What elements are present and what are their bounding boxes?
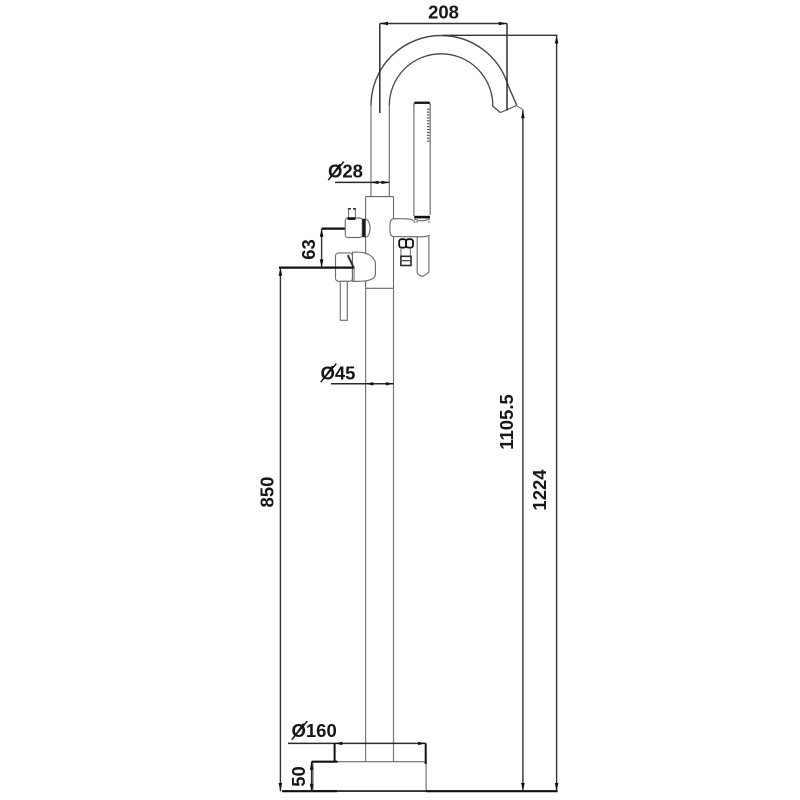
svg-text:Ø28: Ø28 xyxy=(328,161,363,182)
svg-text:850: 850 xyxy=(257,477,278,508)
svg-text:Ø45: Ø45 xyxy=(321,363,356,384)
svg-text:50: 50 xyxy=(288,766,309,787)
svg-text:208: 208 xyxy=(428,2,459,23)
svg-text:1105.5: 1105.5 xyxy=(496,394,517,450)
svg-text:63: 63 xyxy=(298,239,319,260)
svg-text:Ø160: Ø160 xyxy=(292,720,337,741)
svg-text:1224: 1224 xyxy=(529,469,550,511)
